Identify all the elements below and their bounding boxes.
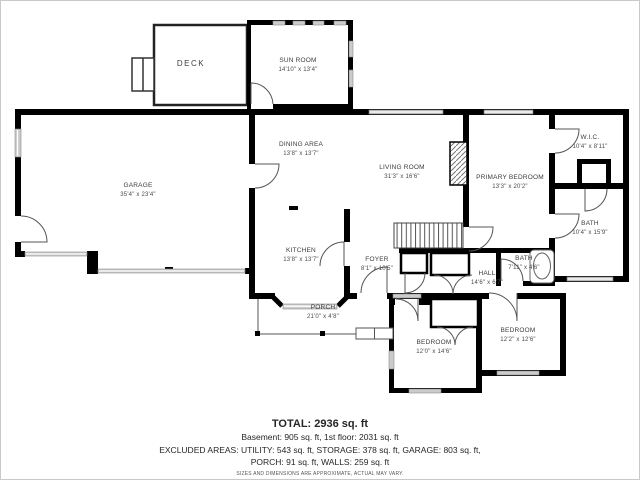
room-name: LIVING ROOM xyxy=(379,163,425,173)
room-label-bath-small: BATH 7'11" x 4'6" xyxy=(508,254,540,273)
room-dims: 12'2" x 12'6" xyxy=(500,336,536,345)
room-name: W.I.C. xyxy=(572,133,607,143)
room-dims: 7'11" x 4'6" xyxy=(508,264,540,273)
room-name: BATH xyxy=(508,254,540,264)
room-label-porch: PORCH 21'0" x 4'8" xyxy=(307,303,339,322)
room-dims: 31'3" x 16'6" xyxy=(379,173,425,182)
room-dims: 10'4" x 8'11" xyxy=(572,143,607,152)
room-dims: 21'0" x 4'8" xyxy=(307,313,339,322)
floorplan-canvas: DECK SUN ROOM 14'10" x 13'4" GARAGE 35'4… xyxy=(0,0,640,480)
room-name: PORCH xyxy=(307,303,339,313)
room-dims: 8'1" x 10'5" xyxy=(361,265,393,274)
room-name: KITCHEN xyxy=(283,246,319,256)
room-name: HALL xyxy=(471,269,503,279)
room-label-dining-area: DINING AREA 13'8" x 13'7" xyxy=(279,140,323,159)
room-dims: 12'0" x 14'6" xyxy=(416,348,452,357)
excluded-areas: EXCLUDED AREAS: UTILITY: 543 sq. ft, STO… xyxy=(1,445,639,455)
walls xyxy=(15,20,629,393)
room-label-wic: W.I.C. 10'4" x 8'11" xyxy=(572,133,607,152)
room-dims: 13'8" x 13'7" xyxy=(283,256,319,265)
room-name: PRIMARY BEDROOM xyxy=(476,173,544,183)
excluded-areas-2: PORCH: 91 sq. ft, WALLS: 259 sq. ft xyxy=(1,457,639,467)
room-label-bedroom-right: BEDROOM 12'2" x 12'6" xyxy=(500,326,536,345)
room-name: FOYER xyxy=(361,255,393,265)
room-label-kitchen: KITCHEN 13'8" x 13'7" xyxy=(283,246,319,265)
total-area: TOTAL: 2936 sq. ft xyxy=(1,418,639,430)
room-dims: 14'6" x 6'7" xyxy=(471,279,503,288)
room-name: DECK xyxy=(177,58,205,70)
room-name: BATH xyxy=(572,219,608,229)
room-dims: 14'10" x 13'4" xyxy=(278,66,317,75)
area-summary: TOTAL: 2936 sq. ft Basement: 905 sq. ft,… xyxy=(1,418,639,480)
room-label-living-room: LIVING ROOM 31'3" x 16'6" xyxy=(379,163,425,182)
stairs xyxy=(394,223,463,248)
floorplan-drawing xyxy=(1,1,640,480)
room-label-foyer: FOYER 8'1" x 10'5" xyxy=(361,255,393,274)
fireplace xyxy=(450,142,467,185)
room-name: GARAGE xyxy=(120,181,156,191)
room-label-garage: GARAGE 35'4" x 23'4" xyxy=(120,181,156,200)
room-label-deck: DECK xyxy=(177,58,205,70)
room-name: SUN ROOM xyxy=(278,56,317,66)
closets xyxy=(401,253,478,327)
room-dims: 35'4" x 23'4" xyxy=(120,191,156,200)
floor-areas: Basement: 905 sq. ft, 1st floor: 2031 sq… xyxy=(1,432,639,442)
room-label-bedroom-left: BEDROOM 12'0" x 14'6" xyxy=(416,338,452,357)
room-dims: 13'8" x 13'7" xyxy=(279,150,323,159)
room-label-sun-room: SUN ROOM 14'10" x 13'4" xyxy=(278,56,317,75)
room-name: BEDROOM xyxy=(416,338,452,348)
room-name: DINING AREA xyxy=(279,140,323,150)
room-label-hall: HALL 14'6" x 6'7" xyxy=(471,269,503,288)
room-name: BEDROOM xyxy=(500,326,536,336)
room-dims: 13'3" x 20'2" xyxy=(476,183,544,192)
room-dims: 10'4" x 15'9" xyxy=(572,229,608,238)
room-label-primary-bedroom: PRIMARY BEDROOM 13'3" x 20'2" xyxy=(476,173,544,192)
room-label-bath: BATH 10'4" x 15'9" xyxy=(572,219,608,238)
disclaimer: SIZES AND DIMENSIONS ARE APPROXIMATE, AC… xyxy=(1,471,639,477)
